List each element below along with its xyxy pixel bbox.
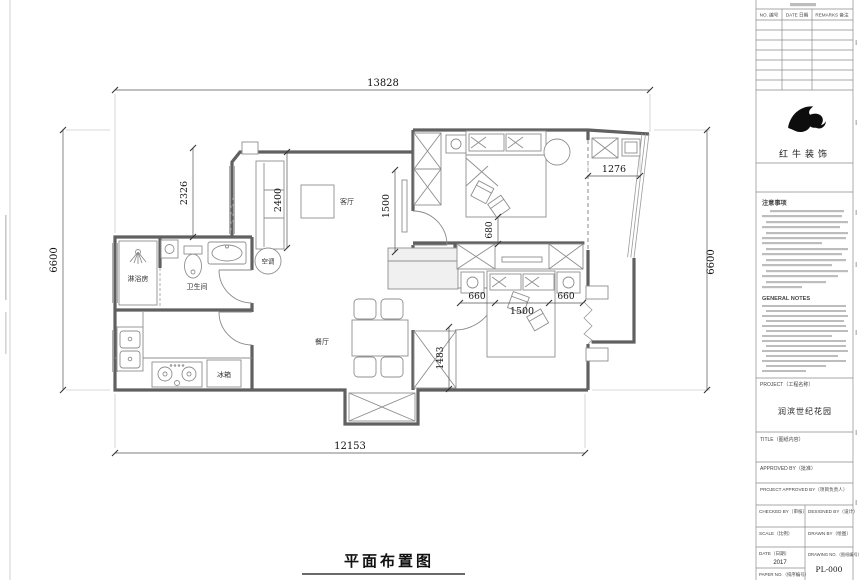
drawing-no-label: DRAWING NO.（图纸编号） xyxy=(808,551,860,558)
label-bathroom: 卫生间 xyxy=(187,282,208,291)
project-approved-label: PROJECT APPROVED BY（项目负责人） xyxy=(760,486,847,493)
dining-chair xyxy=(381,357,403,377)
dim-bed1-gap: 680 xyxy=(485,221,495,238)
title-label: TITLE（图纸内容） xyxy=(760,436,804,443)
designed-by-label: DESIGNED BY（设计） xyxy=(808,508,858,515)
furniture-kitchen xyxy=(115,312,252,387)
company-name: 红牛装饰 xyxy=(779,148,831,159)
rev-col-remarks: REMARKS 备注 xyxy=(815,12,849,19)
stool xyxy=(544,139,570,165)
room-labels: 客厅 餐厅 卫生间 淋浴房 冰箱 空调 xyxy=(128,197,355,379)
dining-table xyxy=(352,320,408,356)
notes-en-title: GENERAL NOTES xyxy=(762,296,810,302)
pillow xyxy=(490,274,521,290)
scale-label: SCALE（比例） xyxy=(759,530,792,537)
dim-balcony: 1276 xyxy=(602,164,626,175)
dim-top-width: 13828 xyxy=(367,78,399,89)
project-name: 润滨世纪花园 xyxy=(778,406,832,416)
dim-offset-left: 2326 xyxy=(179,181,190,205)
washbasin-column xyxy=(161,240,178,258)
furniture-bathroom xyxy=(119,240,246,305)
bull-logo-icon xyxy=(788,106,826,132)
gas-stove xyxy=(152,362,202,387)
nightstand xyxy=(461,272,484,293)
notes-cn-body xyxy=(762,210,848,288)
bathroom-door xyxy=(219,270,252,303)
dim-bed2-side: 1483 xyxy=(436,346,446,369)
dining-chair xyxy=(354,299,376,319)
tv xyxy=(402,180,407,232)
dining-chair xyxy=(354,357,376,377)
checked-by-label: CHECKED BY（审核） xyxy=(759,508,807,515)
label-shower-room: 淋浴房 xyxy=(128,274,149,283)
approved-label: APPROVED BY（批准） xyxy=(760,465,816,472)
pillow xyxy=(469,134,504,151)
kitchen-sink xyxy=(117,327,143,371)
dim-bottom-width: 12153 xyxy=(334,441,366,452)
dim-left-height: 6600 xyxy=(49,247,60,272)
dim-bed2-width: 1500 xyxy=(510,306,534,317)
furniture-balcony xyxy=(592,138,640,158)
pillow xyxy=(506,134,541,151)
dim-bed2-right: 660 xyxy=(557,292,574,302)
drawing-title: 平面布置图 xyxy=(344,552,434,570)
pillow xyxy=(523,274,554,290)
nightstand xyxy=(446,135,466,153)
coffee-table xyxy=(301,185,334,218)
drawing-no-value: PL-000 xyxy=(816,565,843,574)
top-cell-text xyxy=(790,3,816,6)
flue-box xyxy=(242,142,258,154)
drawing-sheet: 13828 12153 6600 6600 2326 2400 1500 680… xyxy=(0,0,860,580)
notes-cn-title: 注意事项 xyxy=(762,199,788,207)
floor-plan-drawing: 13828 12153 6600 6600 2326 2400 1500 680… xyxy=(0,0,860,580)
shower-tray xyxy=(119,241,157,305)
hall-cabinet xyxy=(388,248,458,289)
rev-col-no: NO. 编号 xyxy=(760,12,779,19)
edge-marks xyxy=(856,40,858,505)
tv-on-cabinet xyxy=(502,257,542,262)
dim-tv-wall: 1500 xyxy=(381,194,392,218)
label-ac: 空调 xyxy=(262,257,275,266)
date-value: 2017 xyxy=(773,560,787,566)
window-sill xyxy=(586,286,608,299)
rev-col-date: DATE 日期 xyxy=(786,13,809,19)
label-dining-room: 餐厅 xyxy=(315,337,329,346)
date-label: DATE（日期） xyxy=(759,551,789,557)
label-living-room: 客厅 xyxy=(340,197,354,206)
notes-section: 注意事项 GENERAL NOTES xyxy=(756,199,853,378)
notes-en-body xyxy=(762,305,848,372)
revision-table: NO. 编号 DATE 日期 REMARKS 备注 xyxy=(756,9,853,90)
dining-chair xyxy=(381,299,403,319)
title-block: NO. 编号 DATE 日期 REMARKS 备注 红牛装饰 注意事项 xyxy=(756,0,860,580)
dim-sofa: 2400 xyxy=(273,188,284,212)
company-logo: 红牛装饰 xyxy=(756,106,853,192)
drawn-by-label: DRAWN BY（绘图） xyxy=(808,530,851,537)
window-sill xyxy=(586,348,608,361)
footer: 平面布置图 xyxy=(302,552,465,574)
kitchen-door xyxy=(219,312,252,345)
label-fridge: 冰箱 xyxy=(217,370,231,379)
dim-bed2-left: 660 xyxy=(468,292,485,302)
dim-right-height: 6600 xyxy=(706,249,717,274)
bedroom1-door xyxy=(413,211,447,245)
project-label: PROJECT（工程名称） xyxy=(760,381,813,388)
left-watermark-text xyxy=(5,312,7,354)
nightstand xyxy=(557,272,580,293)
paper-no-label: PAPER NO.（排序编号） xyxy=(759,571,809,578)
left-watermark-text xyxy=(5,215,7,300)
